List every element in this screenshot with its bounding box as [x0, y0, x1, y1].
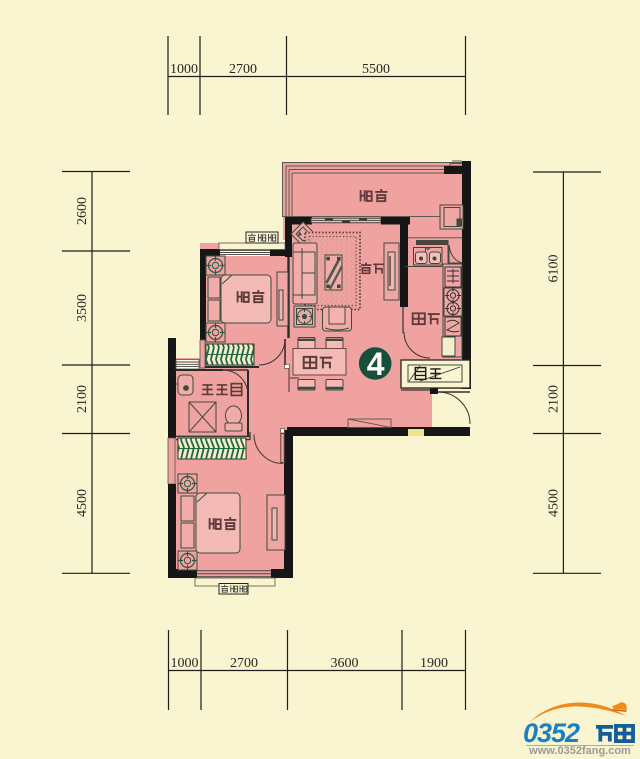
svg-text:6100: 6100 [547, 255, 562, 283]
svg-text:1000: 1000 [171, 656, 199, 671]
svg-text:3600: 3600 [331, 656, 359, 671]
svg-text:2100: 2100 [547, 385, 562, 413]
svg-text:4500: 4500 [75, 489, 90, 517]
svg-text:2700: 2700 [229, 62, 257, 77]
svg-text:2600: 2600 [75, 197, 90, 225]
svg-text:2100: 2100 [75, 385, 90, 413]
svg-text:1900: 1900 [420, 656, 448, 671]
svg-text:4500: 4500 [547, 489, 562, 517]
svg-text:2700: 2700 [230, 656, 258, 671]
svg-text:1000: 1000 [170, 62, 198, 77]
svg-text:4: 4 [367, 346, 385, 382]
svg-text:3500: 3500 [75, 294, 90, 322]
svg-text:0352: 0352 [523, 718, 580, 748]
svg-text:5500: 5500 [362, 62, 390, 77]
svg-text:www.0352fang.com: www.0352fang.com [528, 745, 631, 757]
